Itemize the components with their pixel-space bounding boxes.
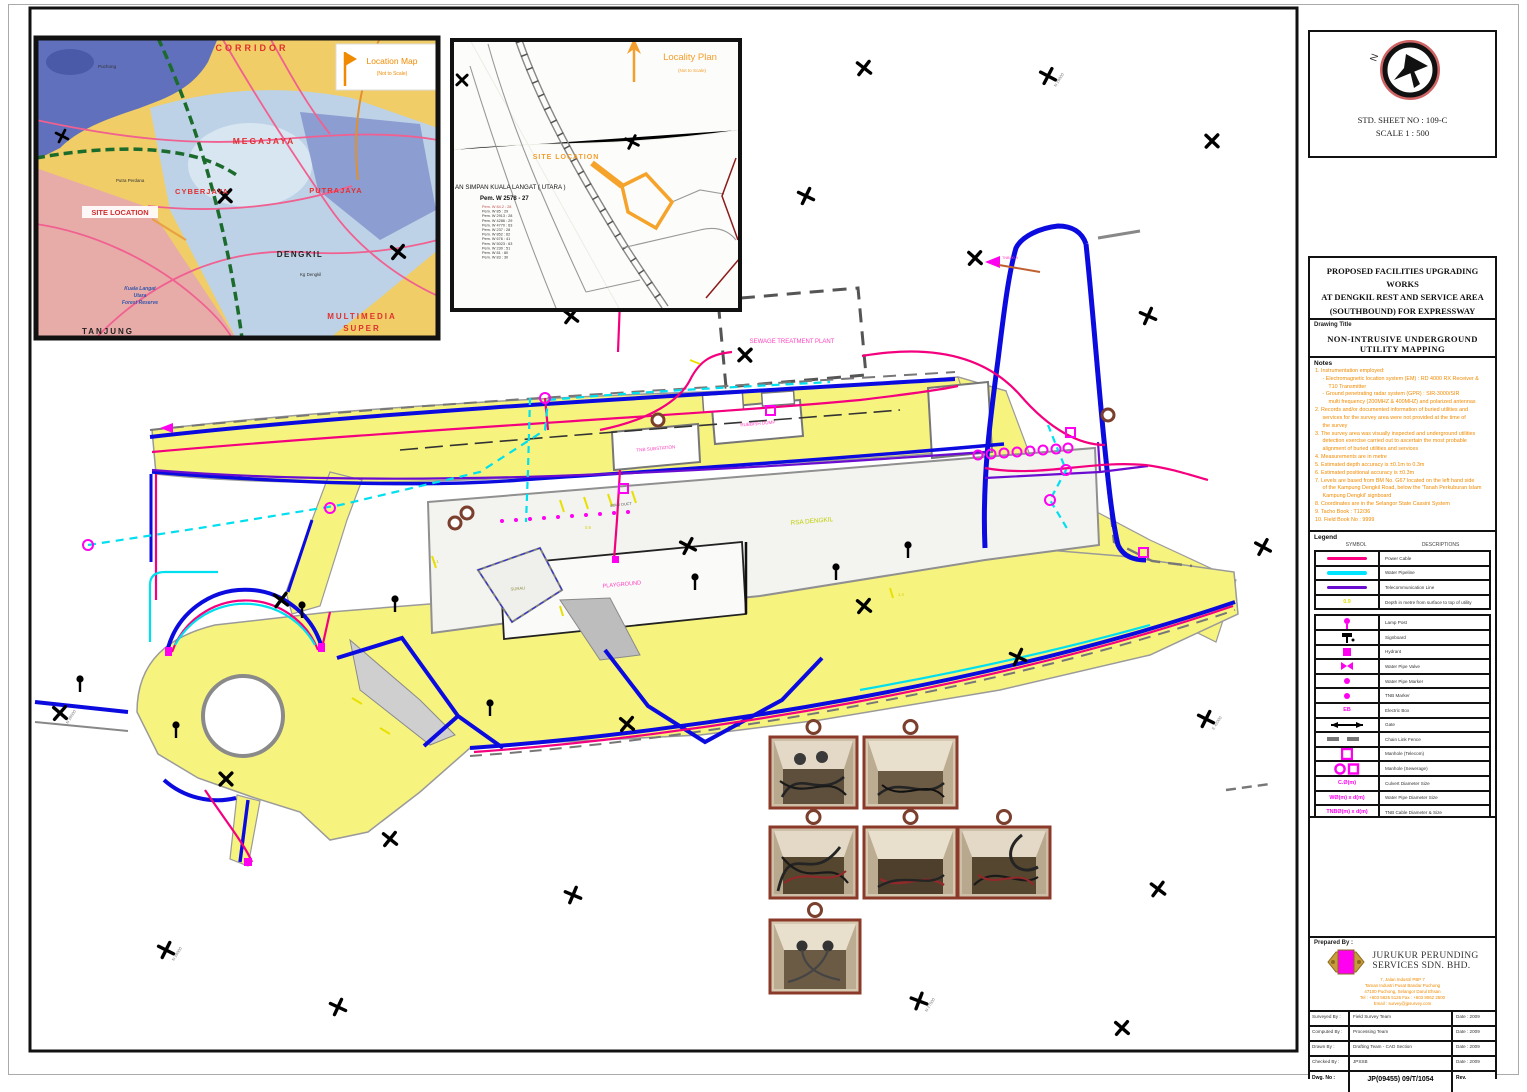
tnb-cable-label: TNBØ0.9 <box>1002 256 1018 260</box>
notes-body: 1. Instrumentation employed: - Electroma… <box>1310 368 1495 525</box>
drawing-title-label: Drawing Title <box>1310 320 1495 328</box>
legend-row: Power Cable <box>1316 552 1489 567</box>
legend-header: Legend <box>1310 532 1495 542</box>
svg-text:Kg Dengkil: Kg Dengkil <box>300 272 321 277</box>
location-map: SITE LOCATION CORRIDOR MEGAJAYA CYBERJAY… <box>36 38 438 338</box>
approval-date: Date : 2009 <box>1453 1042 1495 1055</box>
locality-table-row: Pem. W 83 : 30 <box>482 256 508 260</box>
locality-plan-title: Locality Plan <box>663 52 717 63</box>
legend-row: TNB Marker <box>1316 689 1489 704</box>
legend-line-table: Power Cable Water Pipeline Telecommunica… <box>1314 550 1491 610</box>
legend-description: Gate <box>1380 719 1489 732</box>
project-title-box: PROPOSED FACILITIES UPGRADING WORKS AT D… <box>1308 256 1497 320</box>
spare-box <box>1308 816 1497 938</box>
legend-row: C.Ø(m) Culvert Diameter Size <box>1316 777 1489 792</box>
approval-row: Checked By : JPSSB Date : 2009 <box>1310 1057 1495 1072</box>
svg-text:1.1: 1.1 <box>433 559 439 564</box>
locality-table-row: Pem. W 5023 : 63 <box>482 242 512 246</box>
approval-label: Checked By : <box>1310 1057 1350 1070</box>
svg-text:Utara: Utara <box>134 293 147 299</box>
manhole-photos <box>770 721 1050 994</box>
svg-text:Forest Reserve: Forest Reserve <box>122 300 158 306</box>
legend-row: 0.9 Depth in metre from surface to top o… <box>1316 596 1489 609</box>
svg-text:MEGAJAYA: MEGAJAYA <box>233 136 296 146</box>
locality-table-row: Pem. W 4286 : 29 <box>482 219 512 223</box>
legend-row: Manhole (Telecom) <box>1316 748 1489 763</box>
note-line: T10 Transmitter <box>1310 384 1495 392</box>
company-name: JURUKUR PERUNDING SERVICES SDN. BHD. <box>1372 952 1478 972</box>
note-line: 9. Tacho Book : T12/36 <box>1310 509 1495 517</box>
locality-table-row: Pem. W 237 : 28 <box>482 228 510 232</box>
legend-description: Water Pipe Marker <box>1380 675 1489 688</box>
svg-text:1.4: 1.4 <box>898 592 904 597</box>
svg-text:N: N <box>1368 52 1381 63</box>
legend-description: Power Cable <box>1380 552 1489 565</box>
note-line: 10. Field Book No : 9999 <box>1310 517 1495 525</box>
legend-symbol <box>1316 675 1380 688</box>
approval-label: Drawn By : <box>1310 1042 1350 1055</box>
approval-row: Surveyed By : Field Survey Team Date : 2… <box>1310 1012 1495 1027</box>
note-line: - Ground penetrating radar system (GPR) … <box>1310 391 1495 399</box>
locality-plan: Locality Plan (Not to Scale) SITE LOCATI… <box>452 38 740 310</box>
approval-row: Computed By : Processing Team Date : 200… <box>1310 1027 1495 1042</box>
site-location-label: SITE LOCATION <box>91 208 148 217</box>
note-line: multi frequency (200MHZ & 400MHZ) and po… <box>1310 399 1495 407</box>
legend-description: Lamp Post <box>1380 616 1489 629</box>
dwg-no-row: Dwg. No : JP(09455) 09/T/1054 Rev. <box>1310 1072 1495 1092</box>
legend-description: Water Pipe Valve <box>1380 660 1489 673</box>
legend-row: Lamp Post <box>1316 616 1489 631</box>
approval-date: Date : 2009 <box>1453 1012 1495 1025</box>
legend-symbol <box>1316 660 1380 673</box>
drawing-sheet: { "sheet": { "north_letter": "N", "std_s… <box>0 0 1527 1079</box>
address-line: Email : survey@jpsurvey.com <box>1310 1001 1495 1007</box>
legend-row: EB Electric Box <box>1316 704 1489 719</box>
company-logo <box>1326 947 1366 977</box>
locality-table-row: Pem. W 85 : 29 <box>482 210 508 214</box>
legend-description: Hydrant <box>1380 646 1489 659</box>
approval-value: Processing Team <box>1350 1027 1453 1040</box>
legend-row: Water Pipe Marker <box>1316 675 1489 690</box>
svg-text:Puchong: Puchong <box>98 64 117 69</box>
project-title-line: (SOUTHBOUND) FOR EXPRESSWAY <box>1310 305 1495 318</box>
legend-col-symbol: SYMBOL <box>1346 542 1367 548</box>
legend-box: Legend SYMBOL DESCRIPTIONS Power Cable W… <box>1308 530 1497 818</box>
legend-symbol <box>1316 567 1380 580</box>
sheet-scale: SCALE 1 : 500 <box>1310 128 1495 138</box>
legend-col-descriptions: DESCRIPTIONS <box>1422 542 1460 548</box>
legend-symbol <box>1316 646 1380 659</box>
note-line: of the Kampung Dengkil Road, below the '… <box>1310 485 1495 493</box>
location-map-subtitle: (Not to Scale) <box>377 71 408 77</box>
svg-text:Putra Perdana: Putra Perdana <box>116 178 145 183</box>
note-line: detection exercise carried out to ascert… <box>1310 438 1495 446</box>
svg-text:CORRIDOR: CORRIDOR <box>216 43 289 53</box>
svg-text:Kuala Langat: Kuala Langat <box>124 286 156 292</box>
note-line: 1. Instrumentation employed: <box>1310 368 1495 376</box>
legend-symbol <box>1316 631 1380 644</box>
legend-symbol <box>1316 616 1380 629</box>
legend-symbol <box>1316 748 1380 761</box>
legend-description: TNB Marker <box>1380 689 1489 702</box>
note-line: 3. The survey area was visually inspecte… <box>1310 431 1495 439</box>
legend-description: Chain Link Fence <box>1380 733 1489 746</box>
drawing-title-box: Drawing Title NON-INTRUSIVE UNDERGROUND … <box>1308 318 1497 358</box>
dwg-no-value: JP(09455) 09/T/1054 <box>1350 1072 1453 1092</box>
north-arrow-icon: N <box>1310 32 1495 108</box>
approval-value: JPSSB <box>1350 1057 1453 1070</box>
note-line: Kampung Dengkil' signboard <box>1310 493 1495 501</box>
locality-table-row: Pem. W 81 : 80 <box>482 251 508 255</box>
legend-row: Chain Link Fence <box>1316 733 1489 748</box>
legend-row: Signboard <box>1316 631 1489 646</box>
note-line: 8. Coordinates are in the Selangor State… <box>1310 501 1495 509</box>
note-line: - Electromagnetic location system (EM) :… <box>1310 376 1495 384</box>
legend-description: Signboard <box>1380 631 1489 644</box>
legend-row: Hydrant <box>1316 646 1489 661</box>
legend-description: Manhole (Telecom) <box>1380 748 1489 761</box>
locality-plan-subtitle: (Not to Scale) <box>678 68 707 73</box>
dwg-no-label: Dwg. No : <box>1310 1072 1350 1092</box>
prepared-by-box: Prepared By : JURUKUR PERUNDING SERVICES… <box>1308 936 1497 1012</box>
approval-date: Date : 2009 <box>1453 1027 1495 1040</box>
note-line: services for the survey area were not pr… <box>1310 415 1495 423</box>
notes-box: Notes 1. Instrumentation employed: - Ele… <box>1308 356 1497 532</box>
legend-symbol <box>1316 581 1380 594</box>
locality-ref-table: Pem. W 84.2 : 28Pem. W 85 : 29Pem. W 291… <box>482 205 512 260</box>
legend-description: Manhole (Sewerage) <box>1380 762 1489 775</box>
legend-symbol: C.Ø(m) <box>1316 777 1380 790</box>
legend-description: Water Pipeline <box>1380 567 1489 580</box>
legend-symbol: WØ(m) x d(m) <box>1316 792 1380 805</box>
legend-description: Electric Box <box>1380 704 1489 717</box>
note-line: 6. Estimated positional accuracy is ±0.3… <box>1310 470 1495 478</box>
legend-symbol <box>1316 689 1380 702</box>
approval-value: Field Survey Team <box>1350 1012 1453 1025</box>
note-line: 2. Records and/or documented information… <box>1310 407 1495 415</box>
svg-text:0.9: 0.9 <box>585 525 591 530</box>
locality-table-row: Pem. W 852 : 62 <box>482 233 510 237</box>
locality-site-location: SITE LOCATION <box>533 154 600 161</box>
note-line: 4. Measurements are in metre <box>1310 454 1495 462</box>
legend-description: Telecommunication Line <box>1380 581 1489 594</box>
legend-description: Water Pipe Diameter Size <box>1380 792 1489 805</box>
legend-description: Depth in metre from surface to top of ut… <box>1380 596 1489 609</box>
std-sheet-no: STD. SHEET NO : 109-C <box>1310 115 1495 125</box>
legend-row: Water Pipeline <box>1316 567 1489 582</box>
note-line: the survey <box>1310 423 1495 431</box>
legend-row: Gate <box>1316 719 1489 734</box>
approval-value: Drafting Team - CAD Section <box>1350 1042 1453 1055</box>
roundabout-island <box>203 676 283 756</box>
locality-table-row: Pem. W 2913 : 28 <box>482 214 512 218</box>
svg-text:CYBERJAYA: CYBERJAYA <box>175 187 229 196</box>
project-title-line: PROPOSED FACILITIES UPGRADING WORKS <box>1310 265 1495 291</box>
approval-label: Surveyed By : <box>1310 1012 1350 1025</box>
legend-symbol <box>1316 719 1380 732</box>
approval-date: Date : 2009 <box>1453 1057 1495 1070</box>
locality-table-row: Pem. W 676 : 41 <box>482 237 510 241</box>
company-address: 7, Jalan Industri PBP 7Taman Industri Pu… <box>1310 977 1495 1007</box>
note-line: 7. Levels are based from BM No. G67 loca… <box>1310 478 1495 486</box>
locality-ref: Pem. W 2578 - 27 <box>480 196 529 202</box>
legend-row: Manhole (Sewerage) <box>1316 762 1489 777</box>
legend-symbol <box>1316 733 1380 746</box>
legend-symbol: 0.9 <box>1316 596 1380 609</box>
main-drawing: SEWAGE TREATMENT PLANT TNB SUBSTATION RU… <box>0 0 1527 1079</box>
legend-symbol-table: Lamp Post Signboard Hydrant Water Pipe V… <box>1314 614 1491 850</box>
approval-table: Surveyed By : Field Survey Team Date : 2… <box>1308 1010 1497 1079</box>
note-line: alignment of buried utilities and servic… <box>1310 446 1495 454</box>
notes-header: Notes <box>1310 358 1495 368</box>
approval-label: Computed By : <box>1310 1027 1350 1040</box>
svg-text:SUPER: SUPER <box>343 324 381 333</box>
project-title-line: AT DENGKIL REST AND SERVICE AREA <box>1310 291 1495 304</box>
north-sheet-box: N STD. SHEET NO : 109-C SCALE 1 : 500 <box>1308 30 1497 158</box>
legend-row: WØ(m) x d(m) Water Pipe Diameter Size <box>1316 792 1489 807</box>
locality-table-row: Pem. W 4770 : 63 <box>482 223 512 227</box>
location-map-title: Location Map <box>366 56 417 66</box>
svg-text:PUTRAJAYA: PUTRAJAYA <box>309 186 362 195</box>
note-line: 5. Estimated depth accuracy is ±0.1m to … <box>1310 462 1495 470</box>
locality-table-row: Pem. W 230 : 51 <box>482 246 510 250</box>
approval-row: Drawn By : Drafting Team - CAD Section D… <box>1310 1042 1495 1057</box>
legend-row: Telecommunication Line <box>1316 581 1489 596</box>
rev-label: Rev. <box>1453 1072 1495 1092</box>
legend-symbol <box>1316 762 1380 775</box>
legend-row: Water Pipe Valve <box>1316 660 1489 675</box>
sewage-plant-label: SEWAGE TREATMENT PLANT <box>750 339 835 345</box>
legend-symbol: EB <box>1316 704 1380 717</box>
drawing-title: NON-INTRUSIVE UNDERGROUND UTILITY MAPPIN… <box>1310 334 1495 354</box>
legend-symbol <box>1316 552 1380 565</box>
svg-text:DENGKIL: DENGKIL <box>277 250 324 259</box>
locality-table-row: Pem. W 84.2 : 28 <box>482 205 511 209</box>
prepared-by-label: Prepared By : <box>1310 938 1495 946</box>
svg-text:MULTIMEDIA: MULTIMEDIA <box>327 312 397 321</box>
legend-description: Culvert Diameter Size <box>1380 777 1489 790</box>
locality-road-name: AN SIMPAN KUALA LANGAT ( UTARA ) <box>455 184 566 191</box>
svg-text:TANJUNG: TANJUNG <box>82 327 134 336</box>
